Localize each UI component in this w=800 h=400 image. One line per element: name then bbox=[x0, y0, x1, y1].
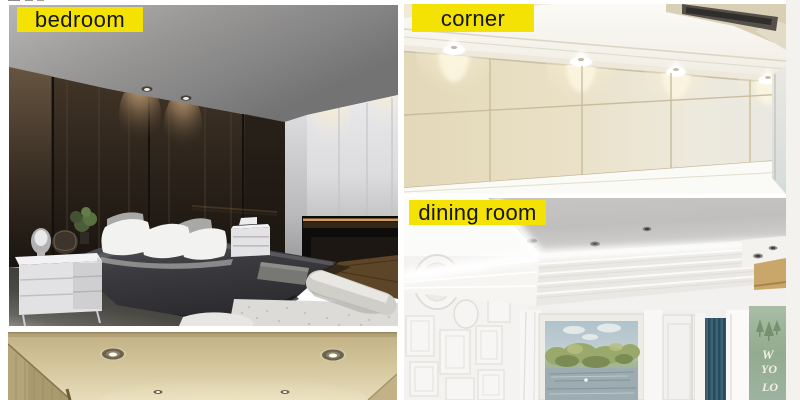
svg-text:W: W bbox=[762, 347, 775, 362]
svg-text:LO: LO bbox=[761, 380, 778, 394]
svg-text:YO: YO bbox=[761, 362, 777, 376]
